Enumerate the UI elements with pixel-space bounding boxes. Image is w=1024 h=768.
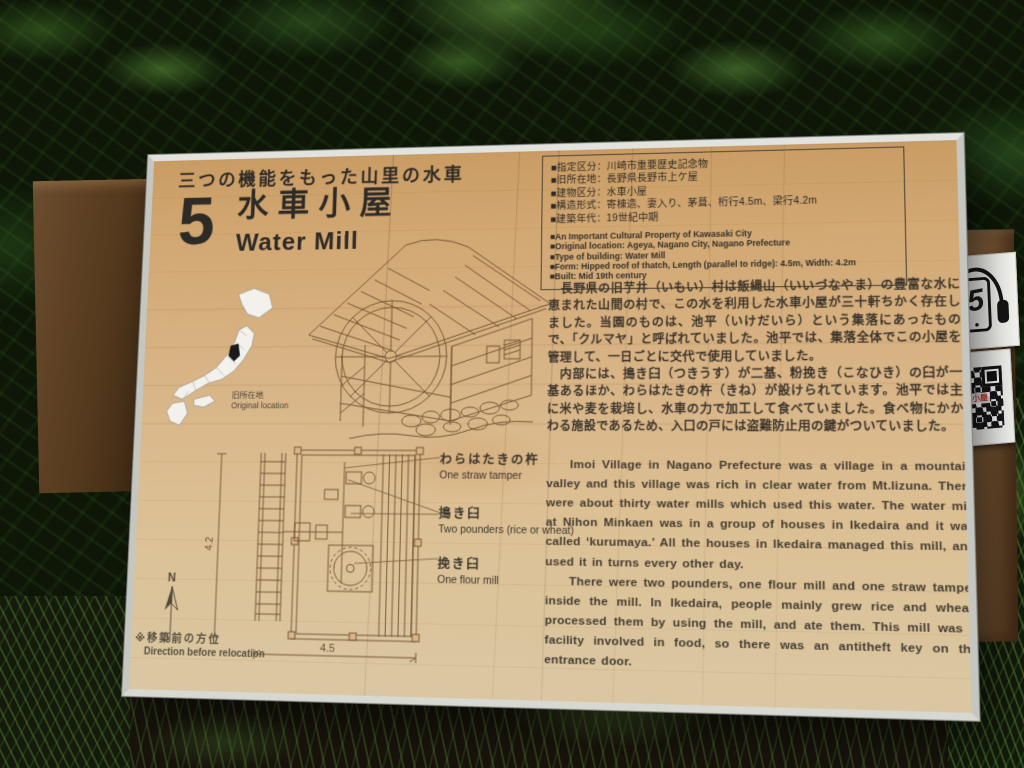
relocation-caption-en: Direction before relocation bbox=[144, 646, 265, 660]
qr-finder-icon bbox=[981, 365, 1002, 387]
en-paragraph-1: Imoi Village in Nagano Prefecture was a … bbox=[545, 455, 971, 578]
japanese-body-text: 長野県の旧芋井（いもい）村は飯縄山（いいづなやま）の豊富な水に恵まれた山間の村で… bbox=[547, 276, 965, 436]
jp-paragraph-1: 長野県の旧芋井（いもい）村は飯縄山（いいづなやま）の豊富な水に恵まれた山間の村で… bbox=[548, 276, 963, 367]
grass-patch-left bbox=[0, 596, 130, 768]
en-paragraph-2: There were two pounders, one flour mill … bbox=[544, 571, 971, 681]
map-caption-jp: 旧所在地 bbox=[231, 390, 289, 401]
photo-scene: 5 水車小屋 三つの機能をもった山里の水車 5 水車小屋 Water Mi bbox=[0, 0, 1024, 768]
jp-paragraph-2: 内部には、搗き臼（つきうす）が二基、粉挽き（こなひき）の臼が一基あるほか、わらは… bbox=[547, 364, 965, 436]
compass-label: N bbox=[168, 572, 177, 584]
sign-number: 5 bbox=[177, 191, 216, 253]
water-mill-illustration bbox=[295, 229, 556, 455]
plan-width-dimension: 4.5 bbox=[320, 642, 335, 655]
map-caption-en: Original location bbox=[231, 401, 289, 412]
sign-title-jp: 水車小屋 bbox=[237, 187, 402, 224]
plan-depth-dimension: 4.2 bbox=[204, 537, 215, 551]
relocation-caption: ※移築前の方位 Direction before relocation bbox=[134, 629, 265, 660]
board-surface: 三つの機能をもった山里の水車 5 水車小屋 Water Mill ■指定区分：川… bbox=[129, 140, 972, 713]
relocation-caption-jp: ※移築前の方位 bbox=[135, 629, 266, 648]
english-body-text: Imoi Village in Nagano Prefecture was a … bbox=[544, 455, 971, 681]
spec-box: ■指定区分：川崎市重要歴史記念物 ■旧所在地：長野県長野市上ケ屋 ■建物区分：水… bbox=[541, 146, 908, 289]
sign-board: 三つの機能をもった山里の水車 5 水車小屋 Water Mill ■指定区分：川… bbox=[122, 133, 980, 721]
map-caption: 旧所在地 Original location bbox=[231, 390, 289, 412]
